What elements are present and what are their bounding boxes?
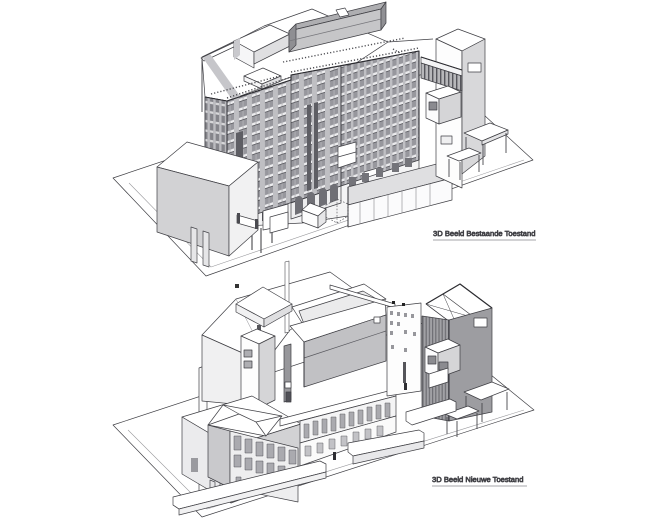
svg-text:3D Beeld Nieuwe Toestand: 3D Beeld Nieuwe Toestand xyxy=(432,475,523,484)
svg-text:3D Beeld Bestaande Toestand: 3D Beeld Bestaande Toestand xyxy=(433,229,535,238)
